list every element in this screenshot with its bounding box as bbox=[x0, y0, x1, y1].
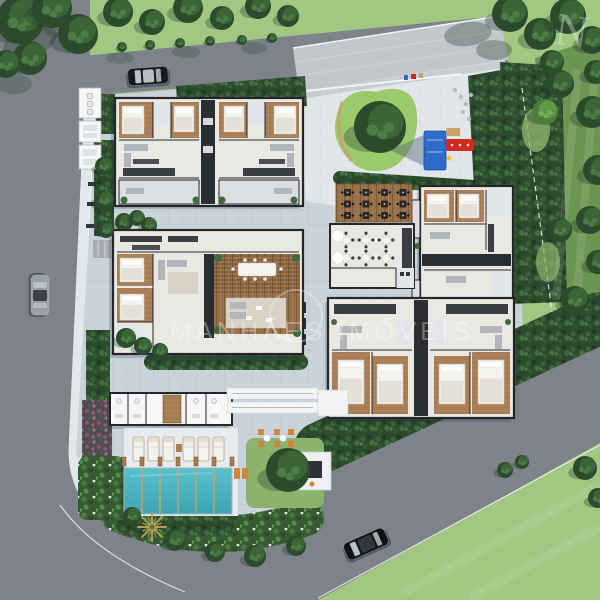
tree bbox=[277, 5, 299, 27]
tree bbox=[267, 33, 277, 43]
aerial-site-plan-rendering: MANHÃES IMÓVEIS N bbox=[0, 0, 600, 600]
tree bbox=[497, 462, 513, 478]
tree bbox=[546, 70, 574, 98]
tree bbox=[244, 545, 266, 567]
tree bbox=[205, 36, 215, 46]
site-plan-canvas: MANHÃES IMÓVEIS N bbox=[0, 0, 600, 600]
tree bbox=[548, 218, 572, 242]
tree bbox=[134, 337, 152, 355]
tree bbox=[175, 38, 185, 48]
tree bbox=[205, 542, 225, 562]
play-structure bbox=[424, 131, 446, 170]
rendered-scene bbox=[0, 0, 600, 600]
tree bbox=[152, 343, 168, 359]
tree bbox=[145, 40, 155, 50]
tree bbox=[98, 222, 114, 238]
tree bbox=[58, 14, 98, 54]
car-west-street bbox=[29, 273, 50, 317]
tree bbox=[561, 286, 589, 314]
tree bbox=[286, 536, 306, 556]
garden-tree bbox=[266, 448, 310, 492]
tree bbox=[94, 190, 114, 210]
tree bbox=[117, 42, 127, 52]
tree bbox=[116, 328, 136, 348]
tree bbox=[237, 35, 247, 45]
watermark-text: MANHÃES IMÓVEIS bbox=[170, 316, 474, 346]
pool-garden bbox=[78, 456, 126, 520]
tree bbox=[210, 6, 234, 30]
tree bbox=[532, 99, 558, 125]
palm-tree bbox=[138, 513, 166, 541]
tree bbox=[139, 9, 165, 35]
tree bbox=[515, 455, 529, 469]
tree bbox=[164, 529, 186, 551]
tree bbox=[95, 157, 113, 175]
tree bbox=[123, 507, 141, 525]
car-north-street bbox=[125, 66, 170, 89]
watermark-monogram: N bbox=[552, 3, 592, 58]
tree bbox=[573, 456, 597, 480]
playground-tree bbox=[354, 101, 406, 153]
